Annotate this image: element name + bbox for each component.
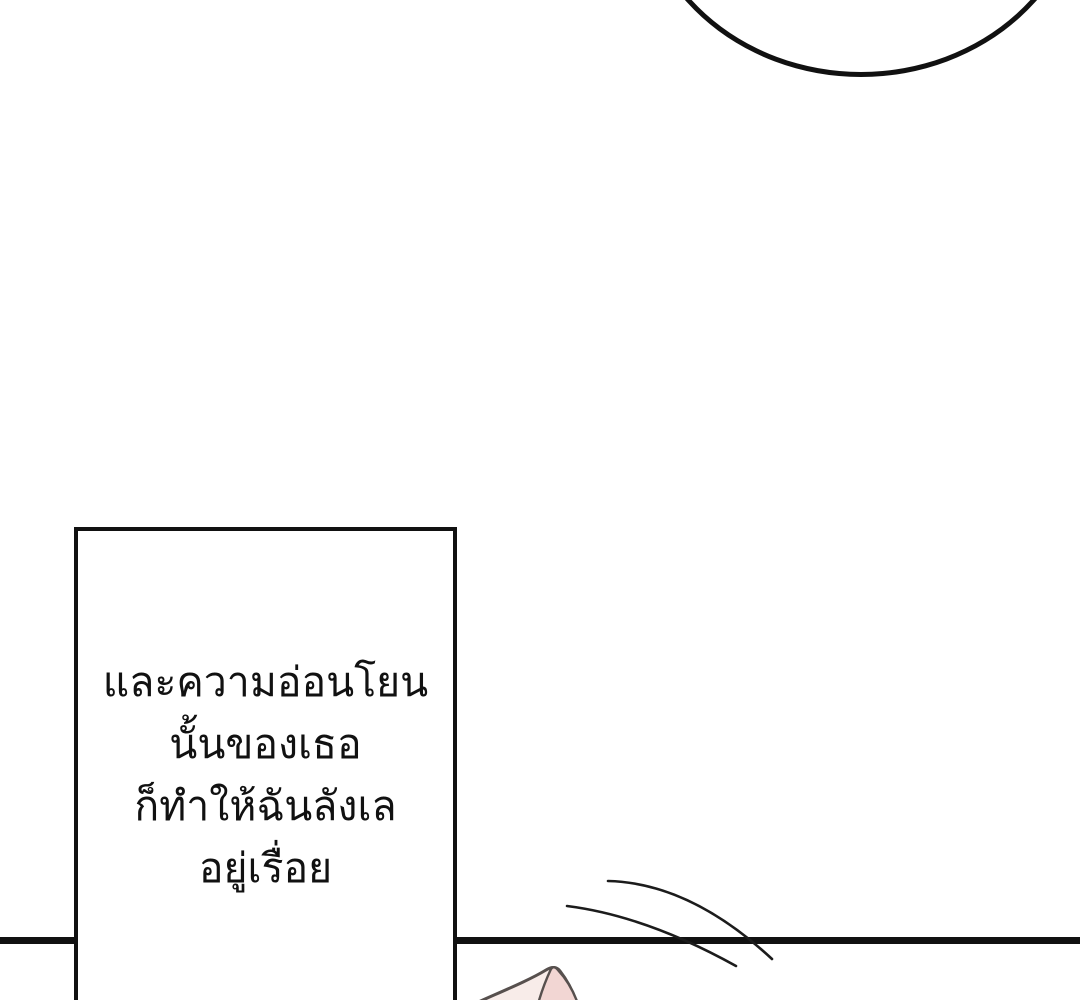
- caption-box: และความอ่อนโยน นั้นของเธอ ก็ทำให้ฉันลังเ…: [74, 527, 457, 1000]
- caption-line-4: อยู่เรื่อย: [78, 837, 453, 899]
- fingertip-nail: [538, 967, 578, 1000]
- caption-line-3: ก็ทำให้ฉันลังเล: [78, 775, 453, 837]
- caption-line-2: นั้นของเธอ: [78, 713, 453, 775]
- motion-line-lower: [567, 906, 736, 966]
- comic-panel-page: และความอ่อนโยน นั้นของเธอ ก็ทำให้ฉันลังเ…: [0, 0, 1080, 1000]
- caption-line-1: และความอ่อนโยน: [78, 651, 453, 713]
- motion-line-upper: [608, 881, 772, 959]
- fingertip-outline: [474, 967, 577, 1000]
- speech-bubble-partial: [636, 0, 1080, 77]
